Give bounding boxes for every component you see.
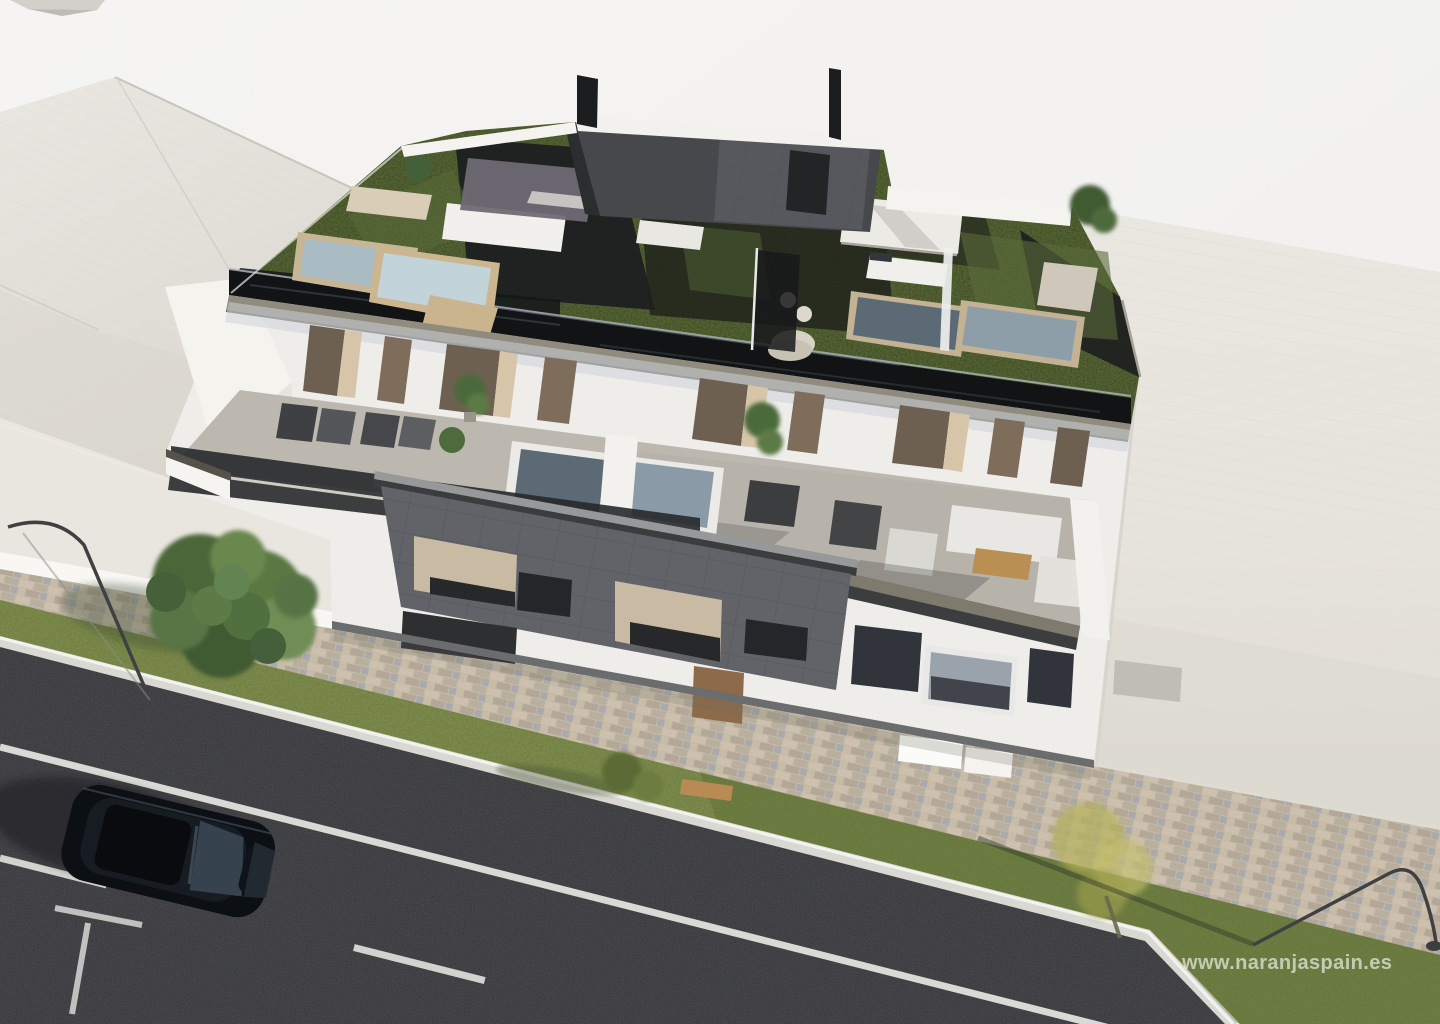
svg-text:www.naranjaspain.es: www.naranjaspain.es	[1181, 952, 1392, 974]
